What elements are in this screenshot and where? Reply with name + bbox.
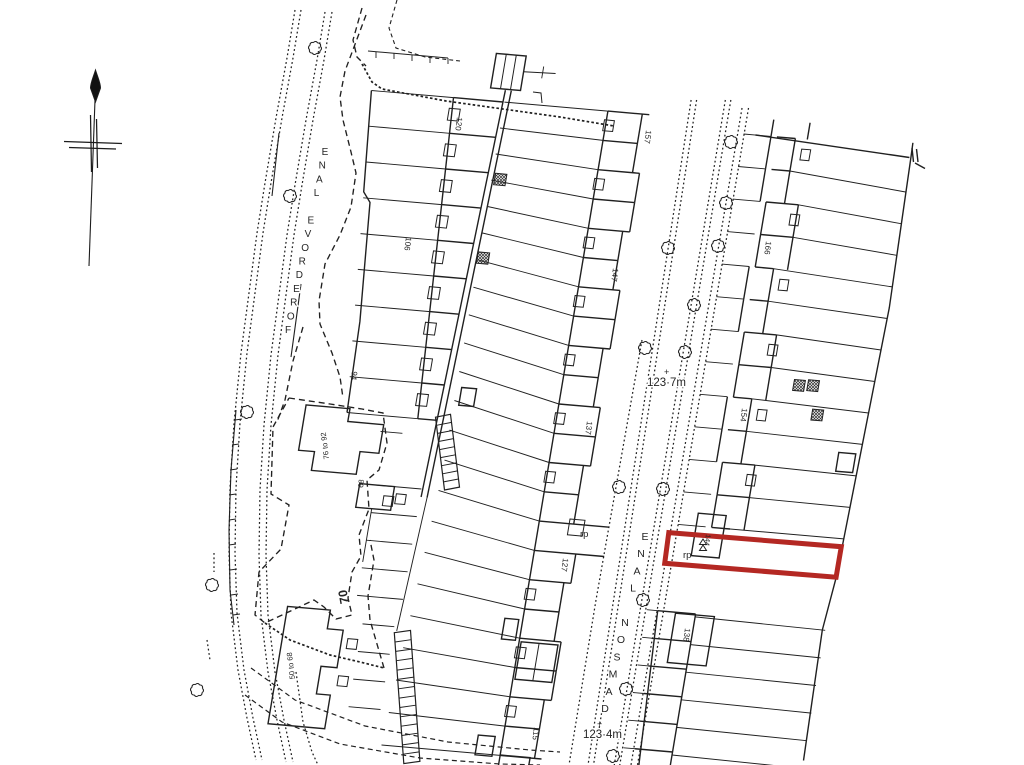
svg-text:157: 157 — [642, 130, 653, 145]
svg-text:E: E — [322, 147, 329, 158]
svg-text:rp: rp — [580, 529, 588, 540]
svg-text:N: N — [319, 161, 326, 172]
svg-text:+: + — [664, 367, 669, 377]
svg-text:R: R — [299, 257, 306, 268]
svg-text:120: 120 — [453, 117, 464, 132]
svg-text:147: 147 — [609, 268, 620, 283]
svg-text:D: D — [601, 703, 609, 715]
svg-text:E: E — [307, 216, 314, 227]
svg-text:S: S — [613, 651, 620, 663]
svg-text:123·7m: 123·7m — [647, 377, 686, 389]
svg-text:N: N — [637, 548, 645, 560]
svg-text:115: 115 — [530, 727, 541, 741]
svg-text:144: 144 — [703, 534, 711, 547]
svg-text:A: A — [605, 686, 612, 698]
svg-text:154: 154 — [738, 408, 749, 423]
svg-text:O: O — [301, 243, 309, 254]
svg-text:rp: rp — [683, 550, 691, 561]
svg-text:123·4m: 123·4m — [583, 729, 622, 741]
svg-text:68: 68 — [356, 479, 366, 488]
svg-text:106: 106 — [402, 237, 413, 252]
svg-text:O: O — [617, 634, 625, 646]
svg-text:E: E — [641, 531, 648, 543]
svg-text:L: L — [314, 188, 320, 199]
svg-text:V: V — [305, 229, 312, 240]
svg-text:E: E — [293, 284, 300, 295]
svg-text:F: F — [285, 325, 291, 336]
svg-text:+: + — [597, 719, 602, 729]
svg-text:N: N — [621, 617, 629, 629]
svg-text:D: D — [296, 270, 303, 281]
svg-text:138: 138 — [681, 628, 692, 643]
svg-text:M: M — [609, 669, 618, 681]
svg-text:A: A — [633, 565, 640, 577]
svg-text:166: 166 — [762, 241, 773, 256]
svg-text:70: 70 — [336, 589, 352, 605]
svg-text:L: L — [630, 583, 636, 595]
svg-text:94: 94 — [349, 371, 359, 381]
svg-text:127: 127 — [559, 558, 570, 573]
svg-text:R: R — [290, 298, 297, 309]
svg-text:O: O — [287, 311, 295, 322]
svg-text:A: A — [316, 174, 323, 185]
svg-text:137: 137 — [583, 421, 594, 436]
